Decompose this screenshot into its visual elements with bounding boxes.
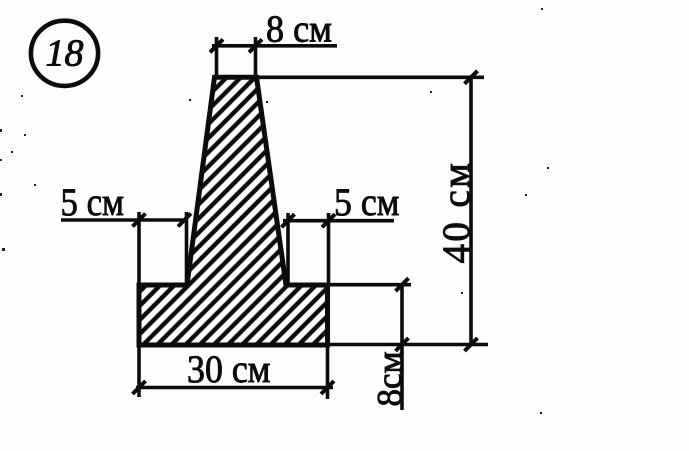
svg-text:8 см: 8 см: [266, 9, 332, 51]
svg-text:40 см: 40 см: [435, 161, 478, 264]
svg-text:30 см: 30 см: [187, 348, 271, 391]
svg-text:8см: 8см: [370, 351, 409, 406]
svg-text:5 см: 5 см: [334, 180, 400, 224]
svg-text:5 см: 5 см: [61, 180, 125, 224]
svg-text:18: 18: [46, 33, 84, 75]
